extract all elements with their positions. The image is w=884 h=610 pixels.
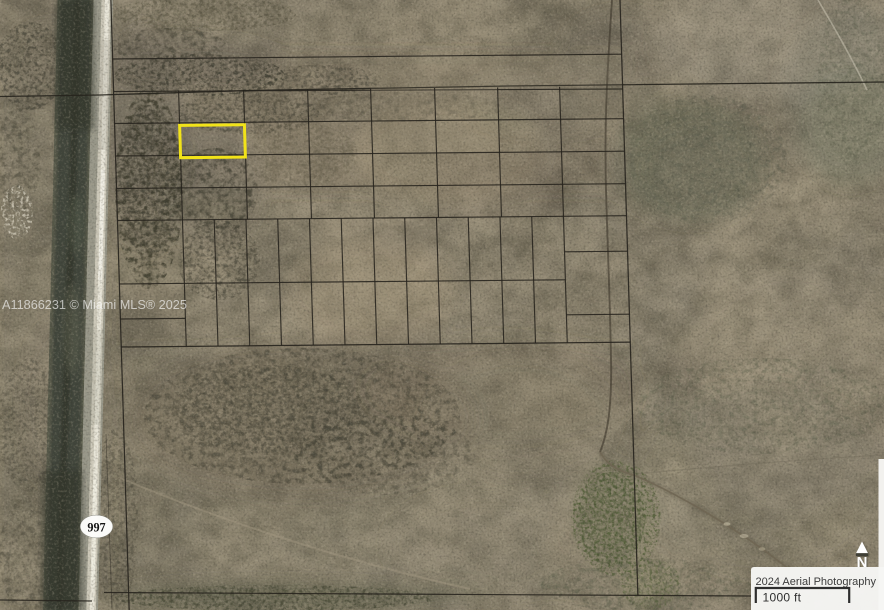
svg-text:2024 Aerial Photography: 2024 Aerial Photography (756, 576, 877, 588)
svg-text:997: 997 (87, 521, 105, 535)
svg-text:A11866231 © Miami MLS® 2025: A11866231 © Miami MLS® 2025 (2, 298, 187, 312)
svg-text:1000 ft: 1000 ft (763, 591, 802, 605)
